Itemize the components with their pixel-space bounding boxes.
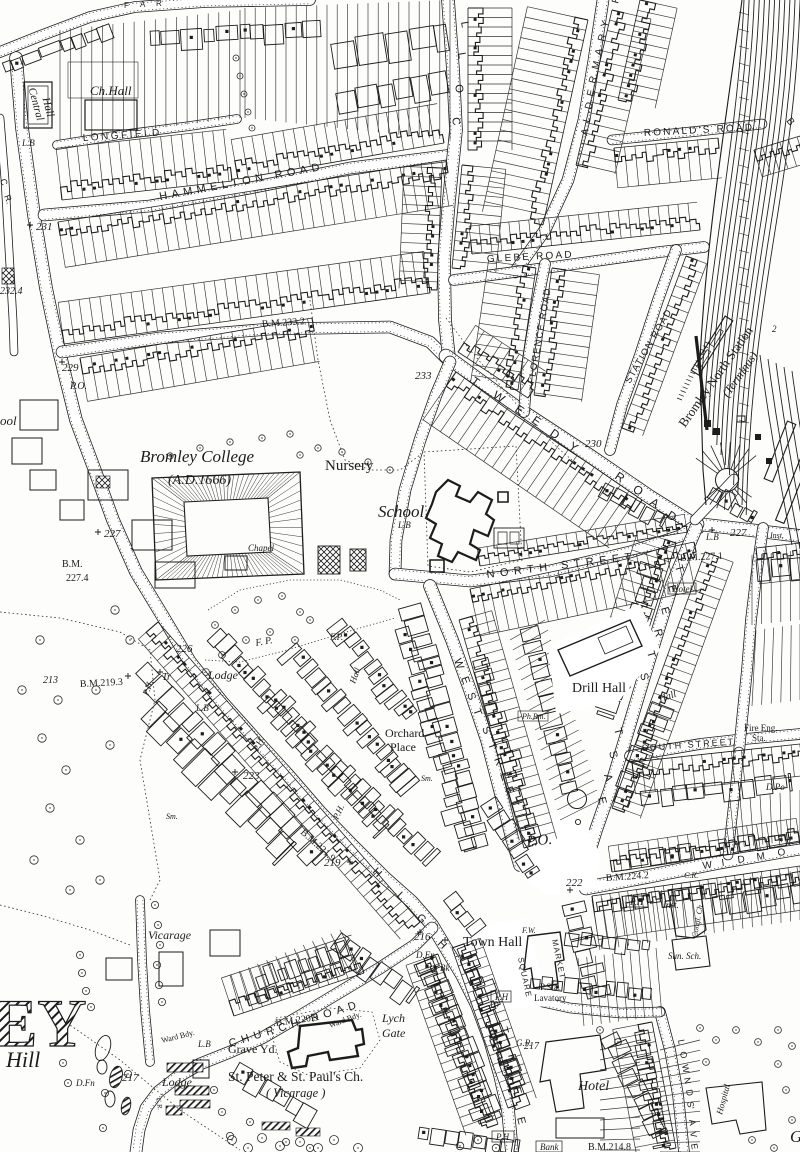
svg-text:Lavatory: Lavatory (534, 993, 567, 1003)
svg-text:D.Fn: D.Fn (75, 1078, 95, 1088)
svg-text:D.Po: D.Po (765, 782, 785, 792)
svg-text:Lodge: Lodge (207, 668, 239, 682)
svg-text:Hotel: Hotel (671, 584, 692, 594)
svg-text:Inst.: Inst. (662, 900, 679, 910)
svg-text:P.Sta.: P.Sta. (540, 982, 560, 992)
svg-text:B.M.214.8: B.M.214.8 (588, 1142, 631, 1152)
svg-text:229: 229 (62, 362, 79, 374)
svg-text:G: G (790, 1127, 800, 1146)
svg-text:P.H: P.H (495, 1132, 510, 1142)
svg-text:Ch.Hall: Ch.Hall (90, 83, 132, 98)
svg-text:Gate: Gate (382, 1026, 406, 1040)
svg-text:2: 2 (772, 324, 777, 334)
svg-text:P.O.: P.O. (525, 832, 553, 850)
svg-text:Bank: Bank (540, 1142, 559, 1152)
svg-text:P.O.: P.O. (69, 381, 87, 392)
svg-text:P.H: P.H (494, 992, 509, 1002)
svg-text:( Vicarage ): ( Vicarage ) (266, 1086, 325, 1100)
svg-text:217: 217 (122, 1072, 139, 1084)
svg-text:B.M.219.3: B.M.219.3 (80, 677, 124, 690)
svg-text:Place: Place (390, 740, 416, 754)
svg-text:F.P.: F.P. (329, 632, 343, 642)
svg-text:L.B: L.B (21, 138, 35, 148)
svg-text:Chapel: Chapel (248, 543, 274, 553)
svg-text:St. Peter & St. Paul's Ch.: St. Peter & St. Paul's Ch. (228, 1069, 363, 1084)
svg-text:L.B: L.B (397, 520, 411, 530)
svg-text:Nursery: Nursery (325, 458, 374, 474)
svg-text:Sta.: Sta. (752, 733, 766, 743)
svg-text:School: School (378, 502, 425, 521)
svg-text:232.4: 232.4 (0, 286, 23, 297)
svg-text:P.H: P.H (629, 897, 644, 907)
svg-text:L.B: L.B (195, 703, 209, 713)
svg-text:Sun. Sch.: Sun. Sch. (668, 951, 701, 961)
svg-text:A: A (140, 0, 146, 9)
svg-text:Orchard: Orchard (385, 726, 424, 740)
svg-text:Lodge: Lodge (161, 1075, 193, 1089)
svg-text:R: R (156, 0, 162, 8)
svg-text:Ph.Rm.: Ph.Rm. (521, 712, 546, 721)
svg-text:231: 231 (36, 221, 53, 233)
svg-text:Hotel: Hotel (577, 1079, 609, 1094)
svg-text:ool: ool (0, 413, 17, 428)
svg-text:Bk: Bk (440, 963, 450, 973)
svg-text:B.M.227.1: B.M.227.1 (680, 551, 724, 564)
svg-text:Town Hall: Town Hall (463, 935, 522, 950)
svg-text:Bromley College: Bromley College (140, 447, 255, 466)
svg-text:Fire Eng.: Fire Eng. (744, 723, 778, 733)
svg-text:222: 222 (566, 877, 583, 889)
svg-text:Tr: Tr (162, 672, 171, 683)
svg-text:Sm.: Sm. (421, 774, 433, 783)
svg-text:Sm.: Sm. (166, 812, 178, 821)
svg-text:230: 230 (585, 438, 602, 450)
svg-text:227: 227 (104, 528, 121, 540)
svg-text:L.B: L.B (197, 1039, 211, 1049)
svg-text:D: D (737, 854, 746, 866)
svg-text:216: 216 (414, 931, 431, 943)
svg-text:Inst.: Inst. (769, 531, 784, 540)
svg-text:213: 213 (43, 675, 58, 686)
svg-text:Grave Yd.: Grave Yd. (228, 1042, 278, 1056)
svg-text:Vicarage: Vicarage (148, 928, 192, 942)
svg-text:M: M (756, 851, 766, 863)
svg-text:Hill: Hill (5, 1047, 40, 1072)
svg-text:(A.D.1666): (A.D.1666) (168, 473, 231, 488)
svg-text:227: 227 (730, 527, 747, 539)
svg-text:227.4: 227.4 (66, 573, 89, 584)
svg-text:C.R.: C.R. (684, 871, 698, 880)
svg-text:Drill Hall: Drill Hall (572, 681, 626, 696)
svg-text:B.M.: B.M. (62, 559, 83, 570)
svg-text:226: 226 (176, 643, 193, 655)
svg-text:D.Fn: D.Fn (415, 950, 435, 960)
svg-text:233: 233 (415, 370, 432, 382)
svg-text:L.B: L.B (705, 532, 719, 542)
svg-text:Lych: Lych (381, 1011, 405, 1025)
svg-text:F.W.: F.W. (521, 926, 536, 935)
svg-text:F: F (124, 1, 129, 10)
svg-text:223: 223 (243, 770, 260, 782)
svg-text:G.P.: G.P. (516, 1038, 531, 1048)
